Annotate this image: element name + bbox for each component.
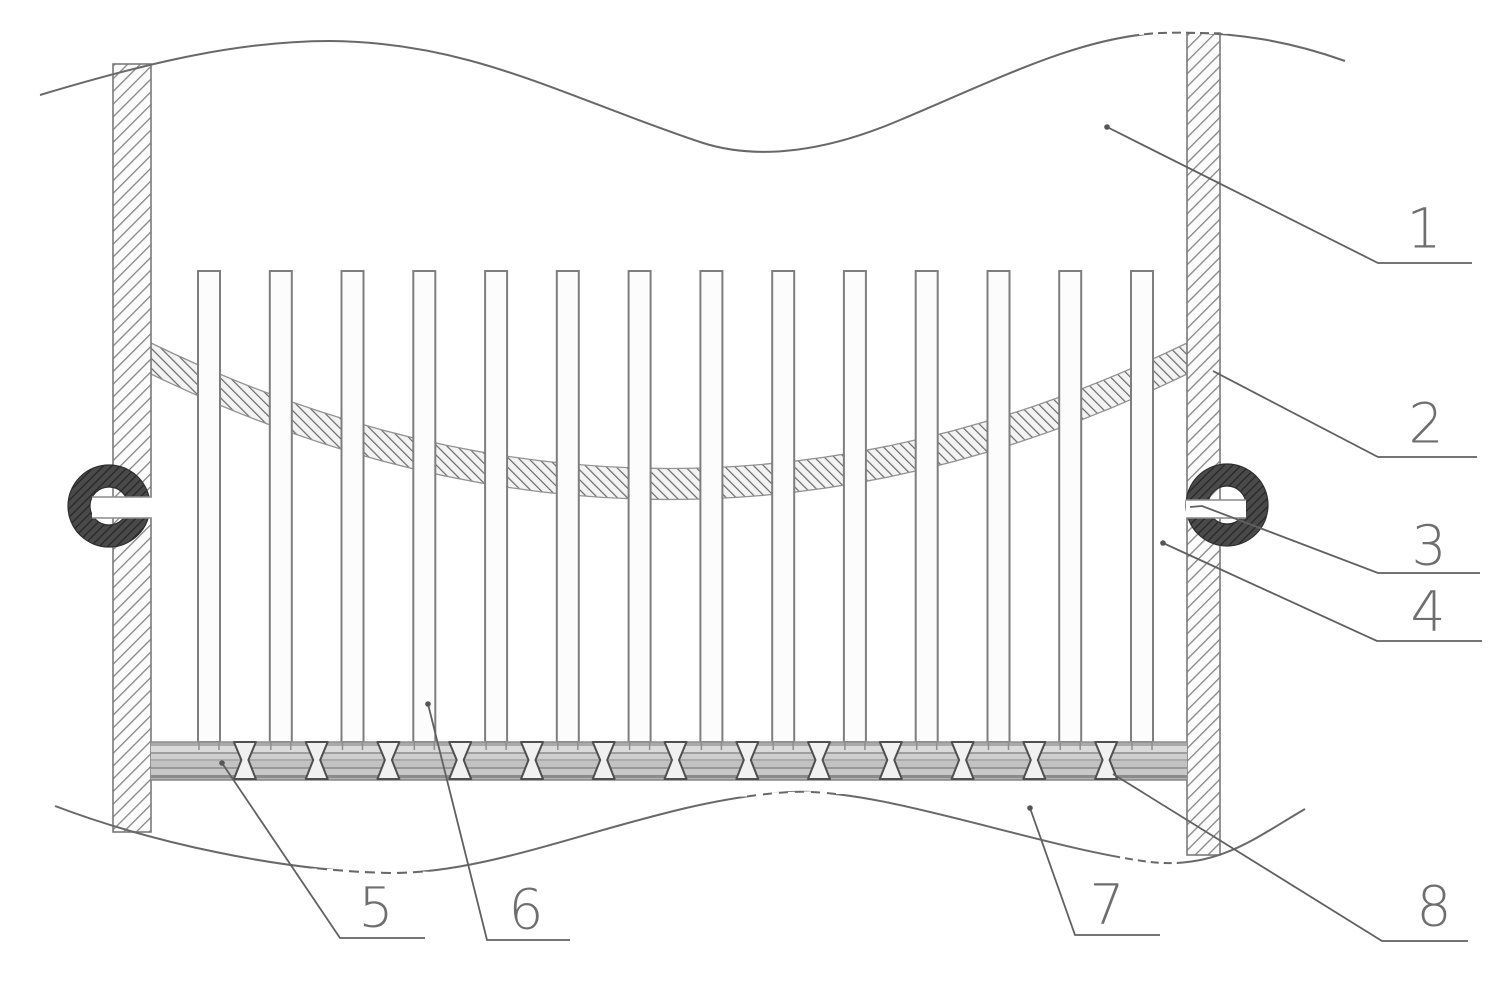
- break-line-top: [40, 32, 1345, 152]
- rod: [270, 271, 292, 742]
- leader-5: [222, 763, 425, 938]
- rod: [700, 271, 722, 742]
- filter-rods: [198, 271, 1153, 742]
- rod: [198, 271, 220, 742]
- leader-7: [1030, 808, 1160, 935]
- break-line-bottom: [55, 792, 1305, 874]
- rod: [629, 271, 651, 742]
- leader-1: [1107, 127, 1472, 263]
- rod: [1059, 271, 1081, 742]
- pipe-slot-right: [1186, 500, 1246, 518]
- tank-right-wall: [1187, 33, 1220, 855]
- rod: [485, 271, 507, 742]
- leader-2: [1213, 371, 1477, 457]
- rod: [1131, 271, 1153, 742]
- rod: [342, 271, 364, 742]
- rod: [772, 271, 794, 742]
- rod: [988, 271, 1010, 742]
- rod: [413, 271, 435, 742]
- figure-canvas: [0, 0, 1510, 992]
- tank-left-wall: [113, 64, 151, 832]
- curved-band: [151, 343, 1187, 500]
- rod: [844, 271, 866, 742]
- patent-figure: 1 2 3 4 5 6 7 8: [0, 0, 1510, 992]
- leader-8: [1113, 774, 1468, 941]
- pipe-slot-left: [92, 497, 152, 518]
- rod: [557, 271, 579, 742]
- rod: [916, 271, 938, 742]
